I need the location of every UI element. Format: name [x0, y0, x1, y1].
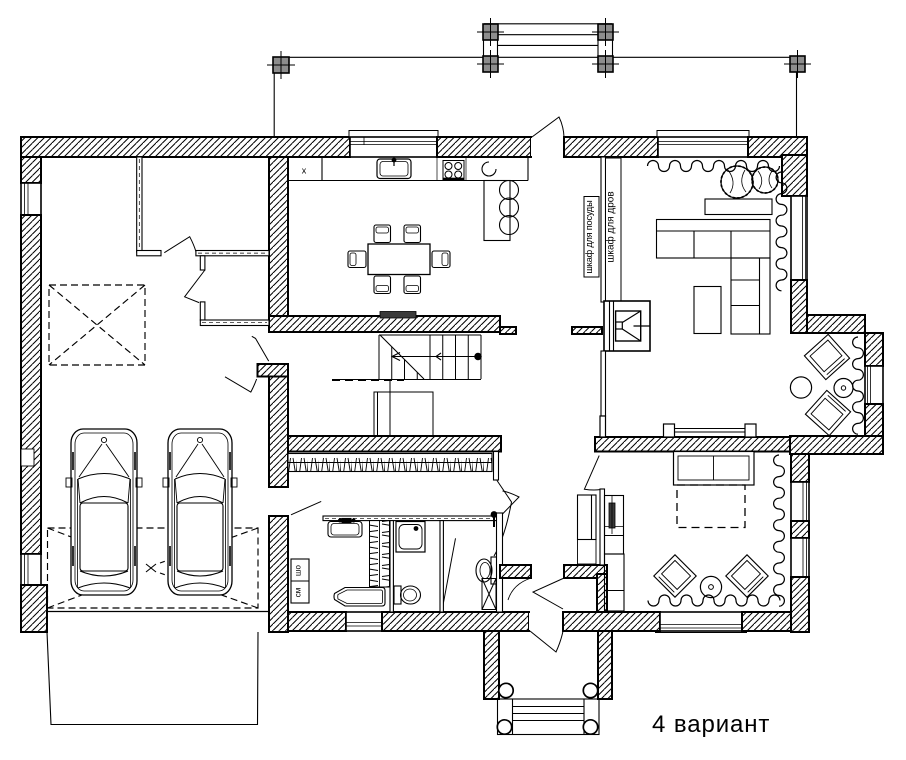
svg-text:x: x — [302, 166, 307, 176]
svg-text:шкаф для посуды: шкаф для посуды — [584, 201, 594, 274]
svg-text:шкаф для дров: шкаф для дров — [605, 191, 617, 262]
svg-text:см: см — [294, 588, 303, 598]
svg-text:4 вариант: 4 вариант — [652, 711, 770, 738]
svg-text:шо: шо — [294, 565, 303, 576]
